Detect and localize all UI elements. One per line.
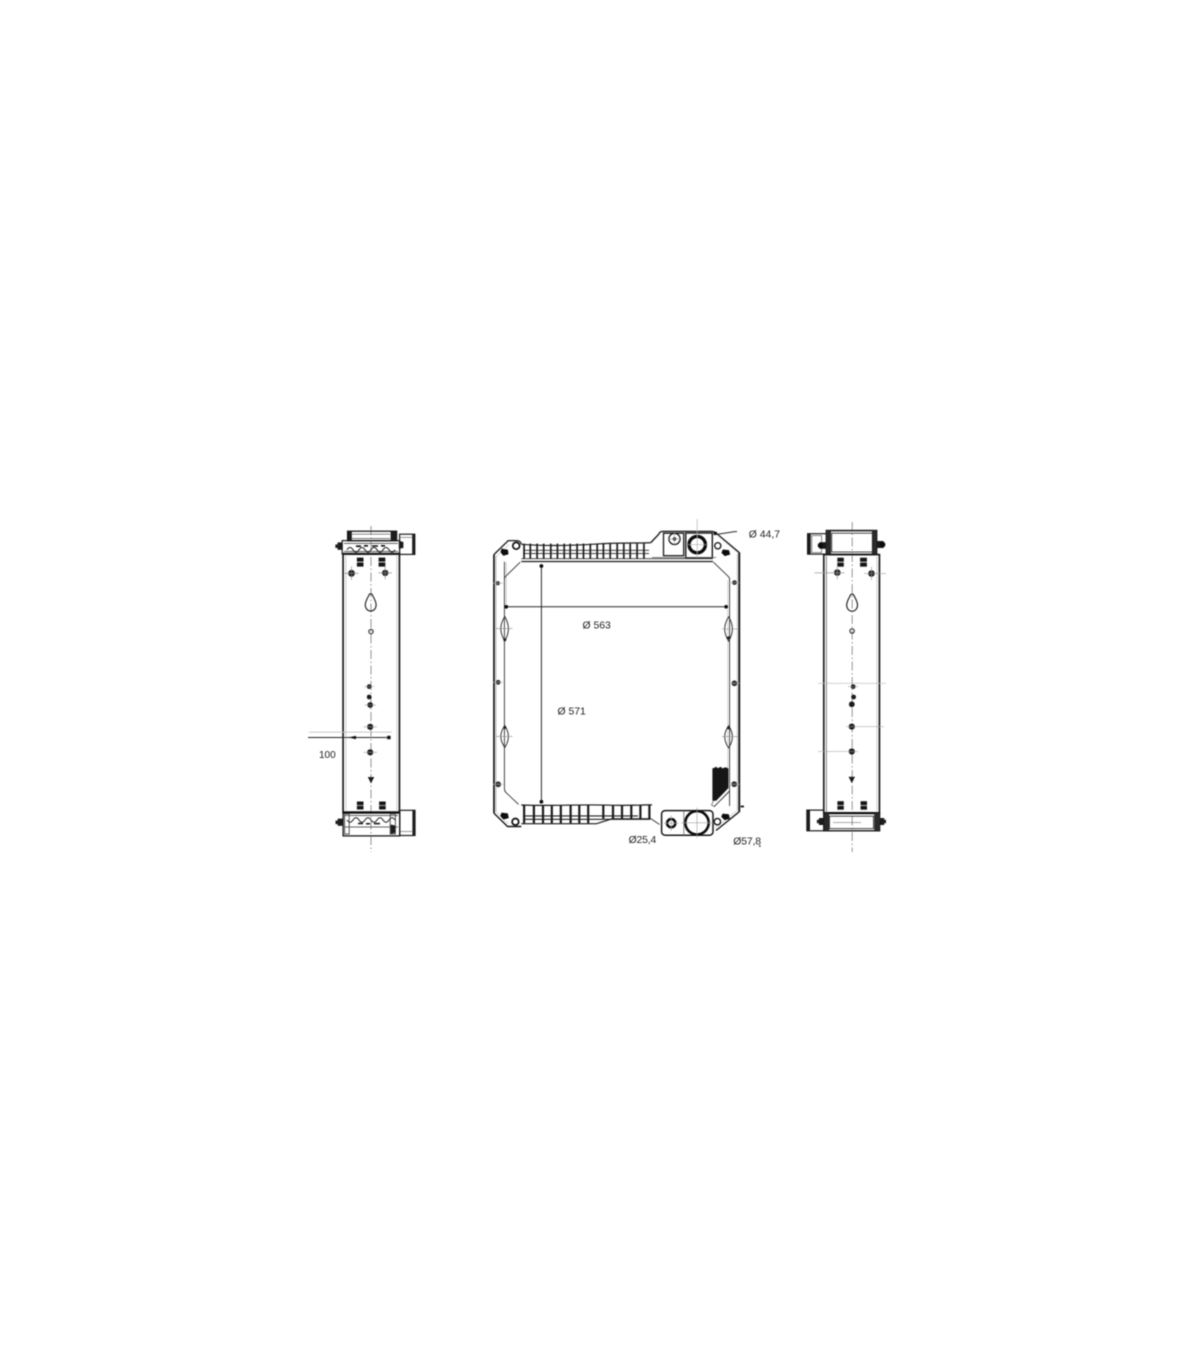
svg-text:Ø25,4: Ø25,4 (629, 835, 657, 846)
svg-text:Ø 44,7: Ø 44,7 (749, 530, 780, 541)
svg-text:Ø 563: Ø 563 (583, 621, 612, 632)
svg-text:100: 100 (319, 750, 336, 761)
svg-text:Ø57,8: Ø57,8 (733, 836, 761, 847)
svg-text:Ø 571: Ø 571 (558, 707, 587, 718)
